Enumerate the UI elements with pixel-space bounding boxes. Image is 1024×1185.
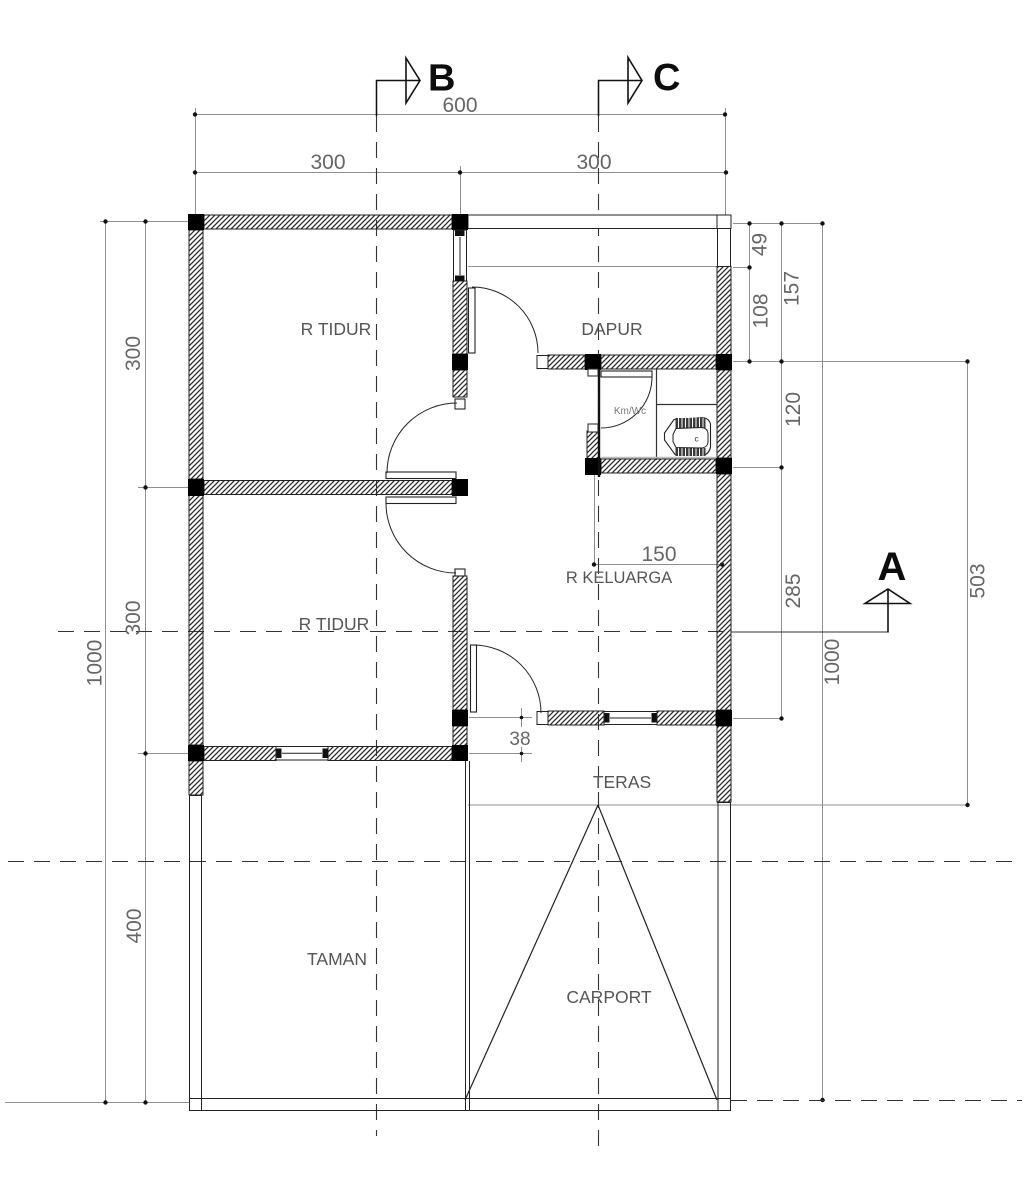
svg-text:300: 300 (576, 151, 611, 174)
svg-text:38: 38 (509, 729, 530, 750)
svg-text:R TIDUR: R TIDUR (299, 614, 370, 634)
svg-text:R TIDUR: R TIDUR (301, 319, 372, 339)
svg-text:600: 600 (442, 94, 477, 117)
svg-text:300: 300 (122, 600, 145, 635)
svg-text:Km/Wc: Km/Wc (614, 406, 646, 417)
svg-text:300: 300 (122, 336, 145, 371)
svg-text:C: C (653, 57, 680, 99)
svg-text:CARPORT: CARPORT (566, 987, 652, 1007)
svg-text:120: 120 (782, 392, 805, 427)
svg-text:150: 150 (641, 543, 676, 566)
svg-text:503: 503 (967, 563, 990, 598)
svg-text:400: 400 (123, 908, 146, 943)
svg-text:R KELUARGA: R KELUARGA (566, 569, 672, 587)
svg-text:TERAS: TERAS (593, 772, 651, 792)
svg-text:285: 285 (782, 573, 805, 608)
svg-text:300: 300 (310, 151, 345, 174)
svg-text:108: 108 (750, 293, 773, 328)
svg-text:1000: 1000 (84, 640, 107, 687)
svg-text:TAMAN: TAMAN (307, 949, 367, 969)
svg-text:49: 49 (749, 233, 772, 256)
svg-text:157: 157 (781, 271, 804, 306)
svg-text:1000: 1000 (821, 639, 844, 686)
svg-text:DAPUR: DAPUR (581, 319, 642, 339)
svg-text:A: A (878, 545, 907, 589)
